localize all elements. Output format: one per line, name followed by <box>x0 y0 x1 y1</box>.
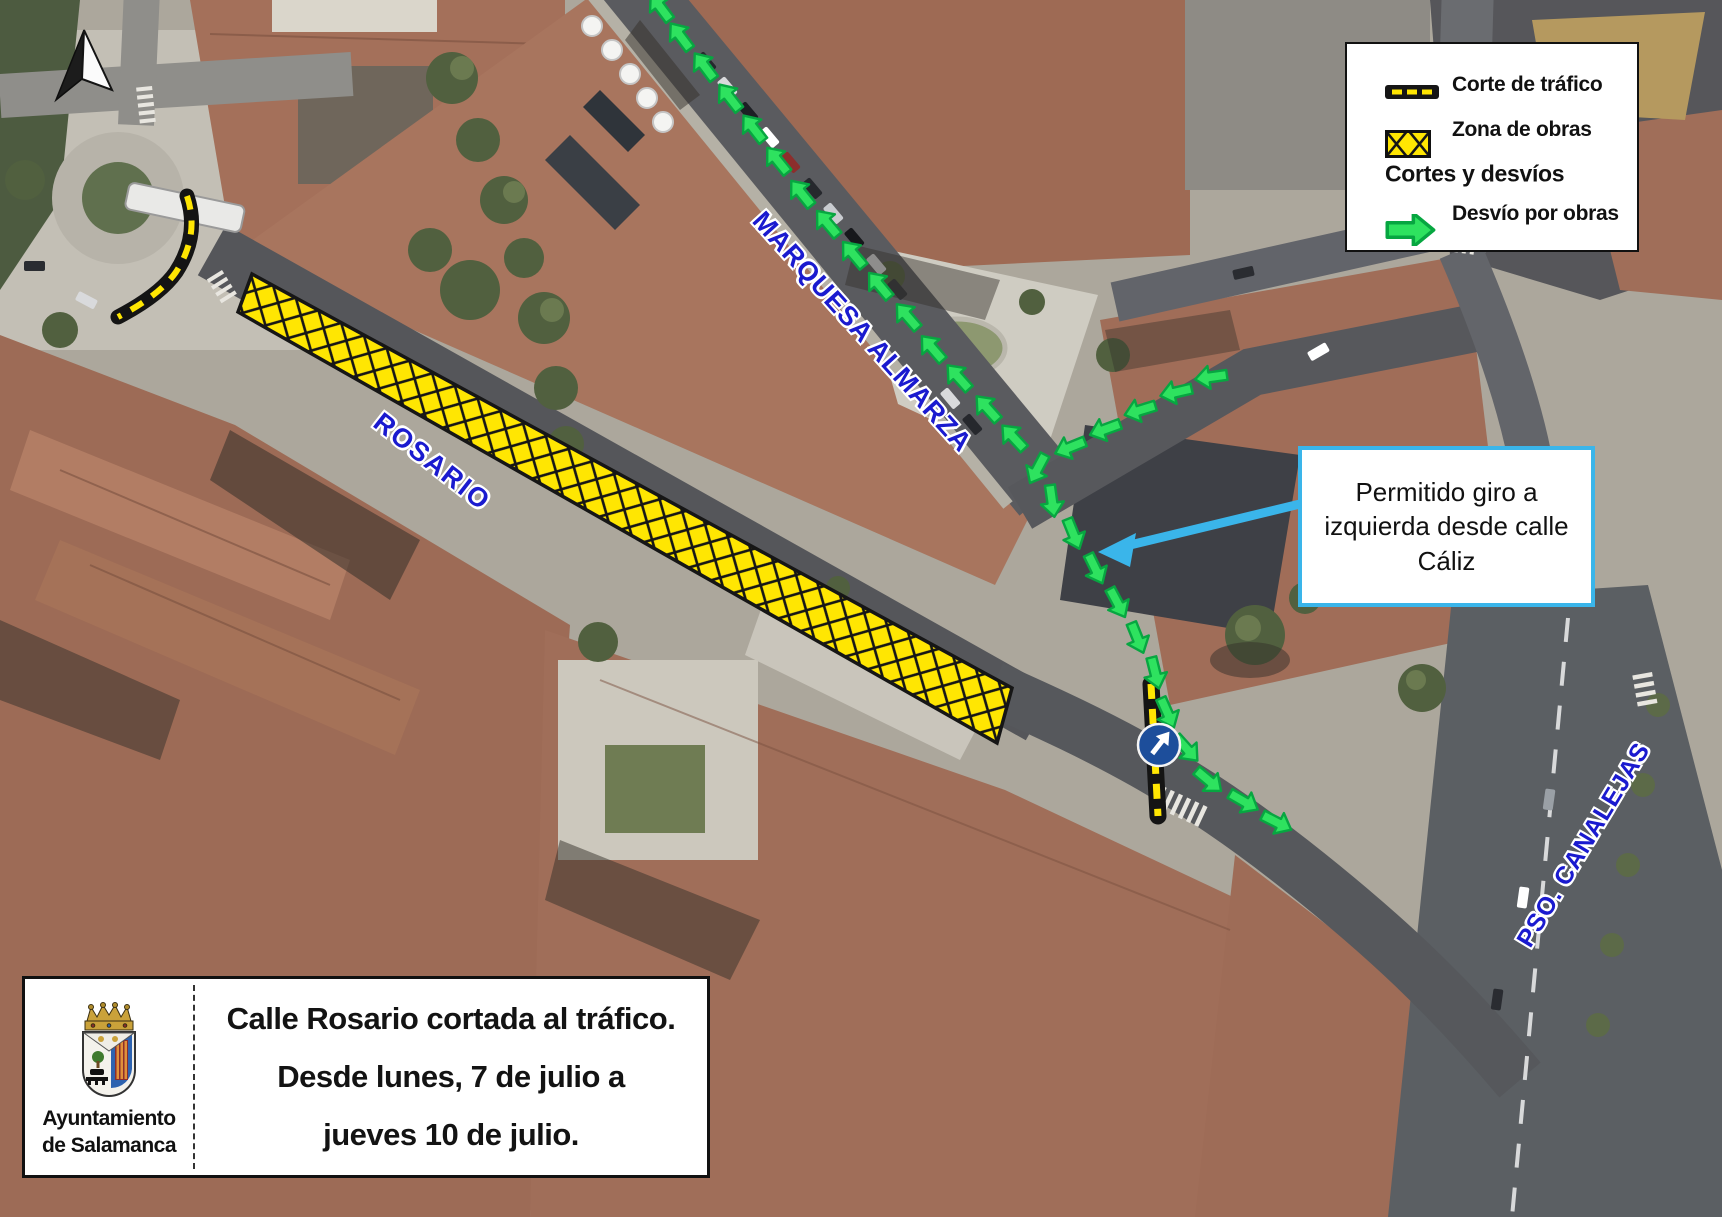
legend-row-detour: Desvío por obras <box>1347 194 1637 234</box>
organization-name-line2: de Salamanca <box>25 1134 193 1158</box>
detour-arrow <box>913 329 951 368</box>
detour-arrow <box>734 109 772 148</box>
closure-message-line1: Calle Rosario cortada al tráfico. <box>195 1001 707 1037</box>
legend-section-header: Cortes y desvíos <box>1385 161 1564 188</box>
detour-arrow <box>1020 449 1055 488</box>
detour-arrow <box>1039 484 1066 519</box>
legend-row-section-header: Cortes y desvíos <box>1347 154 1637 194</box>
detour-arrow <box>888 297 926 336</box>
detour-arrow <box>1257 805 1296 840</box>
detour-arrow <box>710 78 748 117</box>
detour-arrow <box>686 47 724 86</box>
detour-arrow <box>808 204 846 243</box>
detour-arrow <box>642 0 680 27</box>
traffic-closure-map: ROSARIO MARQUESA ALMARZA PSO. CANALEJAS … <box>0 0 1722 1217</box>
callout-text: Permitido giro a izquierda desde calle C… <box>1310 475 1583 578</box>
detour-arrow <box>1194 364 1229 391</box>
detour-arrow <box>1158 377 1194 407</box>
detour-arrow <box>1189 762 1228 800</box>
works-zone <box>238 274 1012 743</box>
traffic-cut-line-roundabout <box>118 196 192 317</box>
detour-arrow <box>860 266 898 305</box>
legend-row-traffic-cut: Corte de tráfico <box>1347 65 1637 105</box>
detour-arrow <box>1086 413 1124 446</box>
detour-arrow <box>1051 431 1089 464</box>
detour-arrow <box>758 141 796 180</box>
detour-arrow <box>1057 515 1090 553</box>
detour-arrow <box>782 174 820 213</box>
legend-label-detour: Desvío por obras <box>1452 202 1619 226</box>
legend-row-works-zone: Zona de obras <box>1347 110 1637 150</box>
detour-arrow <box>968 389 1007 428</box>
closure-message-line3: jueves 10 de julio. <box>195 1117 707 1153</box>
detour-arrow <box>1224 784 1263 820</box>
detour-arrow <box>1100 583 1135 622</box>
detour-arrow <box>994 418 1033 457</box>
organization-section: Ayuntamiento de Salamanca <box>25 979 193 1175</box>
legend-label-traffic-cut: Corte de tráfico <box>1452 73 1602 97</box>
closure-message-line2: Desde lunes, 7 de julio a <box>195 1059 707 1095</box>
map-legend: Corte de tráfico Zona de obras Cortes y … <box>1345 42 1639 252</box>
mandatory-direction-sign-icon <box>1138 724 1180 766</box>
callout-permitted-turn: Permitido giro a izquierda desde calle C… <box>1298 446 1595 607</box>
callout-pointer-arrow <box>1098 504 1300 567</box>
detour-arrow <box>1121 395 1158 426</box>
detour-arrow <box>834 235 872 274</box>
legend-label-works-zone: Zona de obras <box>1452 118 1592 142</box>
organization-name-line1: Ayuntamiento <box>25 1107 193 1131</box>
detour-arrow <box>939 358 978 397</box>
closure-info-panel: Ayuntamiento de Salamanca Calle Rosario … <box>22 976 710 1178</box>
north-arrow-icon <box>56 30 112 100</box>
detour-arrow <box>1121 619 1154 657</box>
closure-message: Calle Rosario cortada al tráfico. Desde … <box>195 979 707 1175</box>
